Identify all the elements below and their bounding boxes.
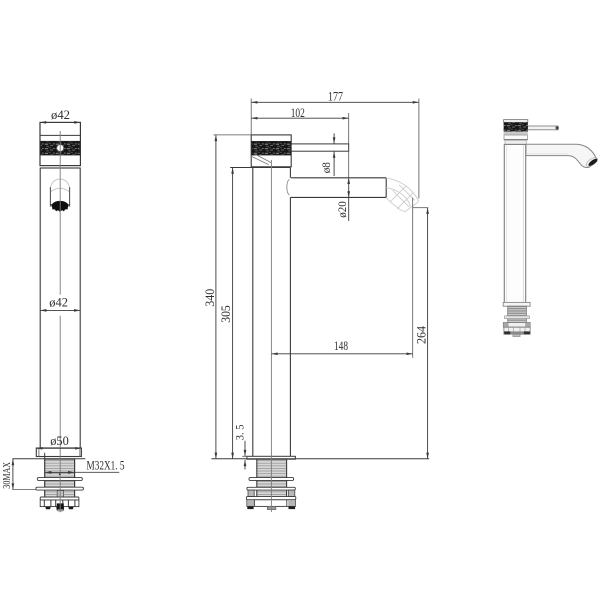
svg-text:ø20: ø20	[337, 201, 349, 218]
svg-text:148: 148	[334, 339, 348, 353]
svg-text:305: 305	[219, 305, 233, 322]
svg-text:ø50: ø50	[50, 433, 69, 448]
svg-text:177: 177	[328, 89, 343, 103]
svg-text:ø42: ø42	[49, 296, 68, 310]
svg-text:ø42: ø42	[51, 108, 70, 122]
svg-text:340: 340	[203, 289, 217, 307]
svg-text:264: 264	[415, 325, 429, 344]
svg-text:102: 102	[291, 106, 305, 120]
svg-text:ø8: ø8	[321, 162, 333, 173]
svg-text:M32X1. 5: M32X1. 5	[87, 459, 125, 473]
svg-text:30MAX: 30MAX	[2, 461, 13, 488]
svg-text:3. 5: 3. 5	[232, 425, 246, 441]
